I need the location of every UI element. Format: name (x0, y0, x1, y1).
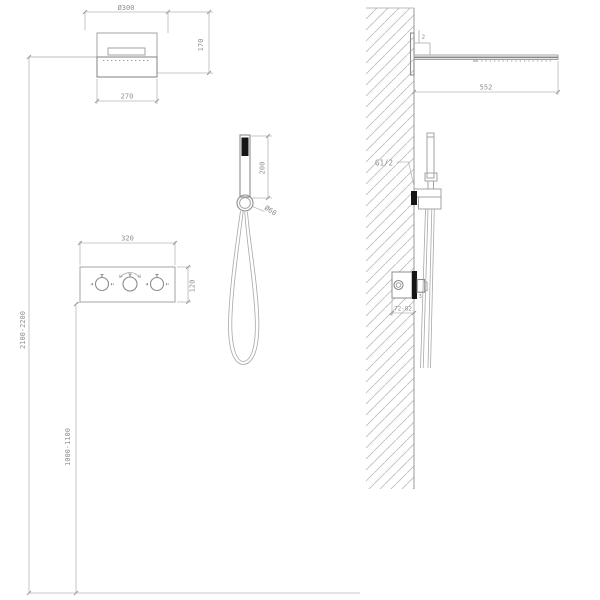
valve-trim-plate-fill (412, 271, 417, 299)
knob-left[interactable] (91, 275, 114, 291)
wall-section (366, 8, 414, 489)
mixer-panel-front: 320 120 (78, 235, 197, 305)
overhead-install-height-label: 2100-2200 (19, 311, 27, 349)
hand-shower-length-label: 200 (259, 162, 267, 175)
panel-dimension-lines (80, 241, 191, 302)
knob-right-marks (146, 283, 169, 285)
trim-thickness-label: 3 (419, 294, 422, 300)
waterfall-slot (108, 48, 145, 55)
install-dimension-lines (29, 57, 360, 593)
head-diameter-label: Ø300 (118, 4, 135, 12)
wand-through-lines (428, 181, 434, 189)
head-bottom-width-label: 270 (121, 93, 134, 101)
bracket-arm (414, 189, 441, 197)
wall-hatch-area (366, 8, 414, 489)
panel-dimension-ticks (78, 241, 190, 304)
panel-outline (80, 267, 175, 302)
mixer-install-height-label: 1000-1100 (64, 428, 72, 466)
install-height-dimensions: 2100-2200 1000-1100 (19, 55, 360, 595)
blade-width-label: 552 (480, 84, 493, 92)
panel-width-label: 320 (121, 235, 134, 243)
panel-height-label: 120 (189, 280, 197, 293)
hose-loop-inner (232, 211, 256, 362)
head-height-label: 170 (197, 39, 205, 52)
side-view: 2 552 G1/2 (366, 8, 560, 489)
hand-shower-front: 200 Ø60 (228, 134, 277, 365)
overhead-shower-side: 2 552 (411, 30, 561, 95)
knob-left-marks (91, 283, 114, 285)
front-view: Ø300 170 270 320 120 (19, 4, 360, 595)
valve-depth-label: 72-82 (394, 306, 412, 313)
bracket-holder (419, 197, 442, 209)
thread-label: G1/2 (375, 159, 393, 168)
mixer-valve-side: 3 72-82 (390, 271, 427, 316)
hand-shower-head-fill (242, 138, 249, 157)
overhead-shower-front: Ø300 170 270 (29, 4, 213, 104)
head-dimension-lines (85, 12, 213, 104)
shower-installation-drawing: Ø300 170 270 320 120 (0, 0, 600, 600)
valve-body (392, 272, 412, 298)
install-dimension-ticks (27, 55, 78, 595)
wall-step-label: 2 (422, 34, 426, 41)
holder-diameter-leader (253, 207, 265, 212)
holder-ring-inner (240, 198, 251, 209)
knob-middle[interactable] (120, 273, 141, 292)
wand-side (427, 133, 434, 178)
wall-supply-elbow-fill (411, 191, 417, 205)
knob-right[interactable] (146, 275, 169, 291)
holder-diameter-label: Ø60 (263, 204, 278, 218)
